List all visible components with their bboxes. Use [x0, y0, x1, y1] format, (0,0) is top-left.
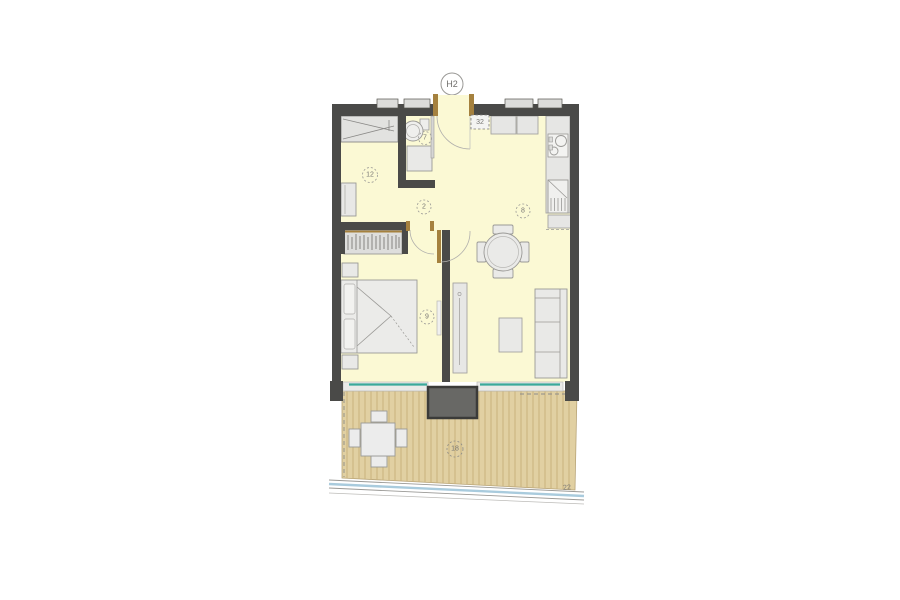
nightstand	[342, 355, 358, 369]
bed	[341, 280, 417, 353]
facade-niche	[404, 99, 430, 108]
sideboard-body	[453, 283, 467, 373]
right-wall	[570, 104, 579, 382]
window-sill	[343, 382, 428, 391]
entrance-jamb	[433, 94, 438, 116]
sink-drainer	[549, 145, 553, 150]
kitchen-end-cabinet	[548, 215, 571, 228]
sink-drainer	[549, 137, 553, 142]
bathroom-label: 7	[423, 135, 427, 142]
structural-column	[428, 387, 477, 418]
kitchen-top-cabinet	[517, 116, 538, 134]
pillow	[344, 319, 355, 349]
bench-body	[341, 183, 356, 216]
terrace-chair	[371, 456, 387, 467]
entrance-jamb	[469, 94, 474, 116]
closet-body	[341, 116, 398, 142]
bathroom-partition	[431, 116, 434, 158]
terrace-table	[361, 423, 395, 456]
living-door-leaf	[437, 230, 441, 263]
sofa	[535, 289, 567, 378]
terrace-chair	[349, 429, 360, 447]
unit-label: H2	[446, 79, 458, 89]
boundary-label: 22	[563, 484, 571, 491]
nightstand	[342, 263, 358, 277]
entrance-vestibule-floor	[437, 95, 470, 116]
floor-plan-svg: H2 22 18	[0, 0, 900, 600]
terrace-chair	[371, 411, 387, 422]
bedroom-label: 9	[425, 314, 429, 321]
terrace-label: 18	[451, 446, 459, 453]
bathroom-left-wall	[398, 116, 406, 188]
corner-pillar	[565, 381, 579, 401]
entry-label: 12	[366, 172, 374, 179]
window-sill	[477, 382, 563, 391]
tv-sideboard	[453, 283, 467, 373]
shaft-label: 32	[476, 119, 484, 126]
terrace-chair	[396, 429, 407, 447]
wardrobe-end-wall	[402, 230, 408, 254]
living-label: 8	[521, 208, 525, 215]
wall-mirror	[437, 301, 441, 335]
corner-pillar	[330, 381, 343, 401]
facade-niche	[505, 99, 533, 108]
bathroom-bottom-wall	[398, 180, 435, 188]
facade-niche	[377, 99, 398, 108]
coffee-table	[499, 318, 522, 352]
kitchen-top-cabinet	[491, 116, 516, 134]
left-wall	[332, 104, 341, 382]
hall-label: 2	[422, 204, 426, 211]
entry-closet	[341, 116, 398, 142]
floor-plan-page: H2 22 18	[0, 0, 900, 600]
bedroom-door-jamb	[430, 221, 434, 231]
unit-label-badge: H2	[441, 73, 463, 95]
entry-bench	[341, 183, 356, 216]
pillow	[344, 284, 355, 314]
bedroom-door-jamb	[406, 221, 410, 231]
shaft-label-badge: 32	[471, 115, 489, 129]
wardrobe	[341, 230, 408, 254]
living-partition-wall	[442, 230, 450, 382]
dining-table	[484, 233, 522, 271]
bedroom-top-wall	[341, 222, 406, 230]
facade-niche	[538, 99, 562, 108]
kitchen-appliance	[548, 180, 568, 213]
wardrobe-end-wall	[341, 230, 345, 254]
sofa-body	[535, 289, 567, 378]
shower-tray	[407, 146, 432, 171]
wardrobe-body	[344, 230, 402, 254]
